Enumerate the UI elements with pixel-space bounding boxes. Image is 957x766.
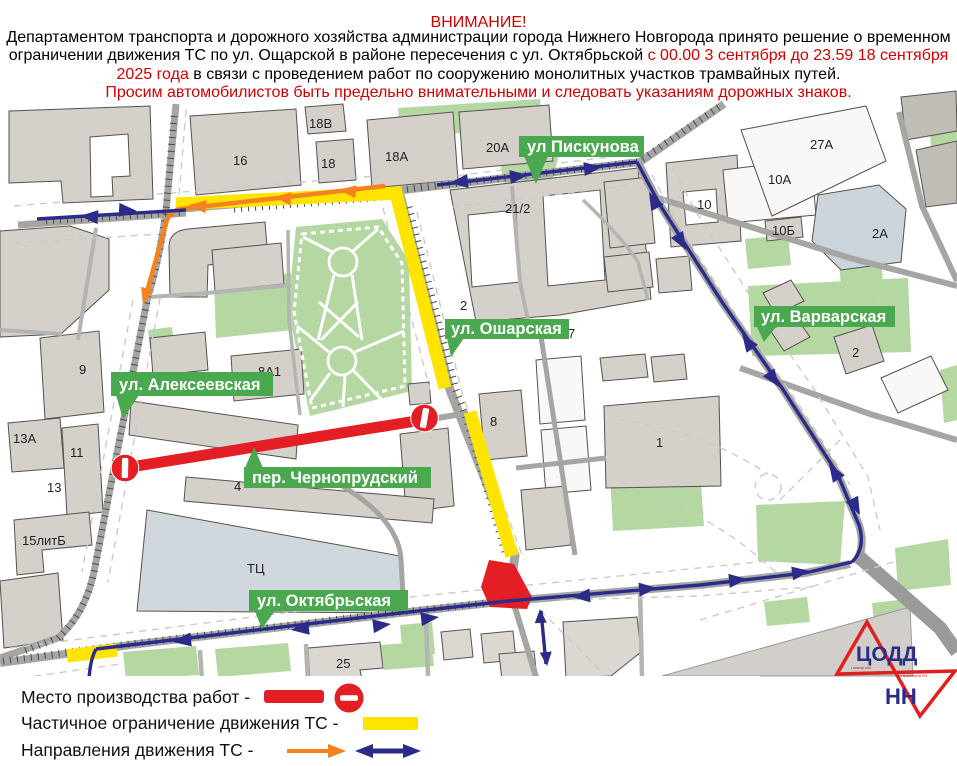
svg-text:уч.транспорта НН: уч.транспорта НН — [898, 674, 927, 678]
svg-text:ул. Ошарская: ул. Ошарская — [451, 320, 562, 338]
svg-text:16: 16 — [233, 153, 247, 168]
svg-text:ул. Алексеевская: ул. Алексеевская — [119, 376, 261, 394]
svg-text:ул. Октябрьская: ул. Октябрьская — [257, 592, 391, 610]
svg-text:10А: 10А — [768, 172, 791, 187]
svg-text:10: 10 — [697, 197, 711, 212]
svg-text:18А: 18А — [385, 149, 408, 164]
svg-text:9: 9 — [79, 362, 86, 377]
svg-text:13: 13 — [47, 480, 61, 495]
svg-text:18В: 18В — [309, 116, 332, 131]
svg-text:25: 25 — [336, 656, 350, 671]
svg-text:27А: 27А — [810, 137, 833, 152]
svg-text:1: 1 — [656, 435, 663, 450]
svg-text:18: 18 — [321, 156, 335, 171]
svg-text:4: 4 — [234, 479, 241, 494]
svg-text:ТЦ: ТЦ — [247, 561, 265, 576]
svg-text:11: 11 — [70, 445, 84, 460]
svg-text:ЦОДД: ЦОДД — [856, 643, 917, 666]
svg-text:2: 2 — [852, 345, 859, 360]
svg-text:20А: 20А — [486, 140, 509, 155]
svg-text:НН: НН — [885, 684, 917, 709]
svg-text:ул Пискунова: ул Пискунова — [527, 138, 640, 156]
svg-text:15литБ: 15литБ — [22, 533, 66, 548]
svg-text:Место производства работ -: Место производства работ - — [21, 687, 250, 707]
svg-text:7: 7 — [568, 326, 575, 341]
svg-text:Направления движения ТС -: Направления движения ТС - — [21, 740, 254, 760]
svg-text:8: 8 — [490, 414, 497, 429]
svg-text:10Б: 10Б — [772, 223, 795, 238]
svg-text:ул. Варварская: ул. Варварская — [761, 308, 886, 326]
svg-text:21/2: 21/2 — [505, 201, 530, 216]
svg-text:Частичное ограничение движения: Частичное ограничение движения ТС - — [21, 713, 339, 733]
svg-text:г.нижгор.обл.: г.нижгор.обл. — [851, 666, 872, 670]
svg-text:13А: 13А — [13, 431, 36, 446]
svg-text:пер. Чернопрудский: пер. Чернопрудский — [252, 469, 418, 487]
svg-text:2: 2 — [460, 298, 467, 313]
svg-text:2А: 2А — [872, 226, 888, 241]
